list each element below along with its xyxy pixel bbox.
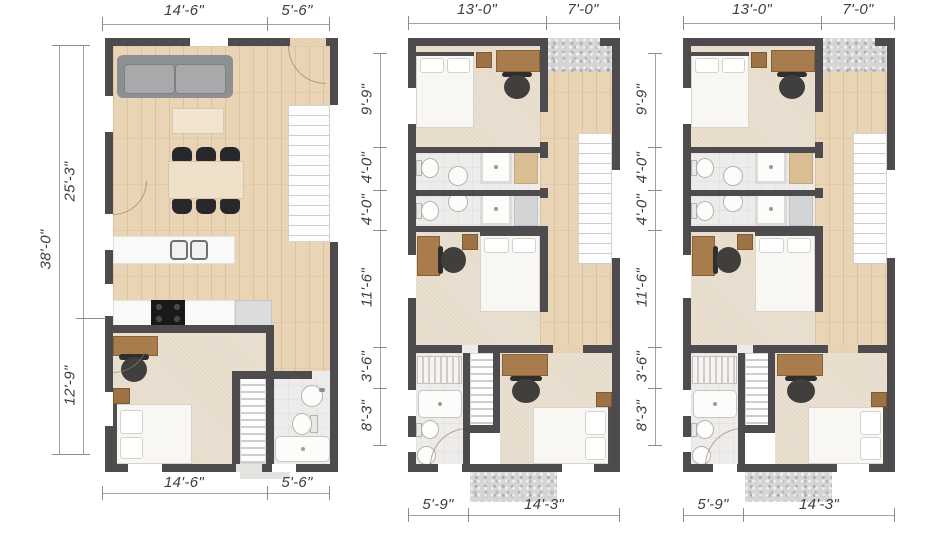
shower-drain bbox=[769, 165, 773, 169]
wall bbox=[745, 425, 775, 433]
dim-label: 11'-6" bbox=[634, 248, 651, 328]
wall bbox=[683, 38, 823, 46]
desk bbox=[692, 236, 715, 276]
desk bbox=[771, 50, 815, 72]
dim-label: 7'-0" bbox=[818, 1, 898, 18]
dim-label: 14'-3" bbox=[779, 496, 859, 513]
dim-label: 8'-3" bbox=[634, 376, 651, 456]
dimension-tick bbox=[894, 508, 895, 522]
storage-cabinet bbox=[789, 192, 813, 226]
dimension-tick bbox=[894, 16, 895, 30]
bathroom-door-opening bbox=[737, 345, 753, 353]
nightstand bbox=[737, 234, 753, 250]
floor-plan-sheet: 14'-6" 5'-6" 14'-6" 5'-6" 38'-0" 25'-3" … bbox=[0, 0, 950, 534]
pillow bbox=[860, 411, 881, 435]
wall bbox=[738, 353, 745, 464]
pillow bbox=[695, 58, 719, 73]
shower-drain bbox=[769, 207, 773, 211]
toilet bbox=[696, 201, 714, 221]
wall bbox=[815, 188, 823, 198]
pillow bbox=[787, 238, 811, 253]
headboard bbox=[691, 52, 749, 56]
linen-cabinet bbox=[789, 150, 813, 184]
window bbox=[683, 390, 691, 416]
desk bbox=[777, 354, 823, 376]
dim-label: 5'-9" bbox=[673, 496, 753, 513]
wall bbox=[815, 142, 823, 158]
nightstand bbox=[871, 392, 887, 407]
nightstand bbox=[751, 52, 767, 68]
wall bbox=[683, 226, 823, 232]
dimension-line bbox=[683, 515, 895, 516]
bathroom-sink bbox=[723, 166, 743, 186]
window bbox=[887, 170, 895, 258]
window bbox=[683, 437, 691, 452]
staircase bbox=[853, 133, 887, 265]
wall bbox=[768, 353, 775, 433]
pillow bbox=[722, 58, 745, 73]
shower bbox=[692, 356, 737, 384]
dimension-tick bbox=[648, 53, 662, 54]
wall bbox=[683, 190, 823, 196]
pillow bbox=[759, 238, 784, 253]
wall bbox=[683, 147, 823, 153]
office-chair bbox=[787, 379, 815, 403]
pillow bbox=[860, 437, 881, 460]
toilet bbox=[696, 158, 714, 178]
window bbox=[683, 255, 691, 298]
dimension-line bbox=[655, 53, 656, 445]
wall bbox=[815, 38, 823, 112]
toilet bbox=[696, 420, 714, 439]
window bbox=[683, 88, 691, 124]
dimension-tick bbox=[821, 16, 822, 30]
tub-drain bbox=[713, 402, 717, 406]
floor-plan-3: 13'-0" 7'-0" 9'-9" 4'-0" 4'-0" 11'-6" 3'… bbox=[275, 0, 950, 534]
dim-label: 4'-0" bbox=[634, 170, 651, 250]
wall bbox=[815, 226, 823, 312]
window bbox=[837, 464, 869, 472]
dim-label: 13'-0" bbox=[712, 1, 792, 18]
bedroom-door-opening bbox=[828, 345, 858, 353]
office-chair bbox=[716, 247, 741, 273]
office-chair bbox=[779, 75, 805, 99]
dimension-line bbox=[683, 23, 895, 24]
headboard bbox=[755, 232, 815, 236]
dimension-tick bbox=[683, 16, 684, 30]
window bbox=[713, 464, 737, 472]
